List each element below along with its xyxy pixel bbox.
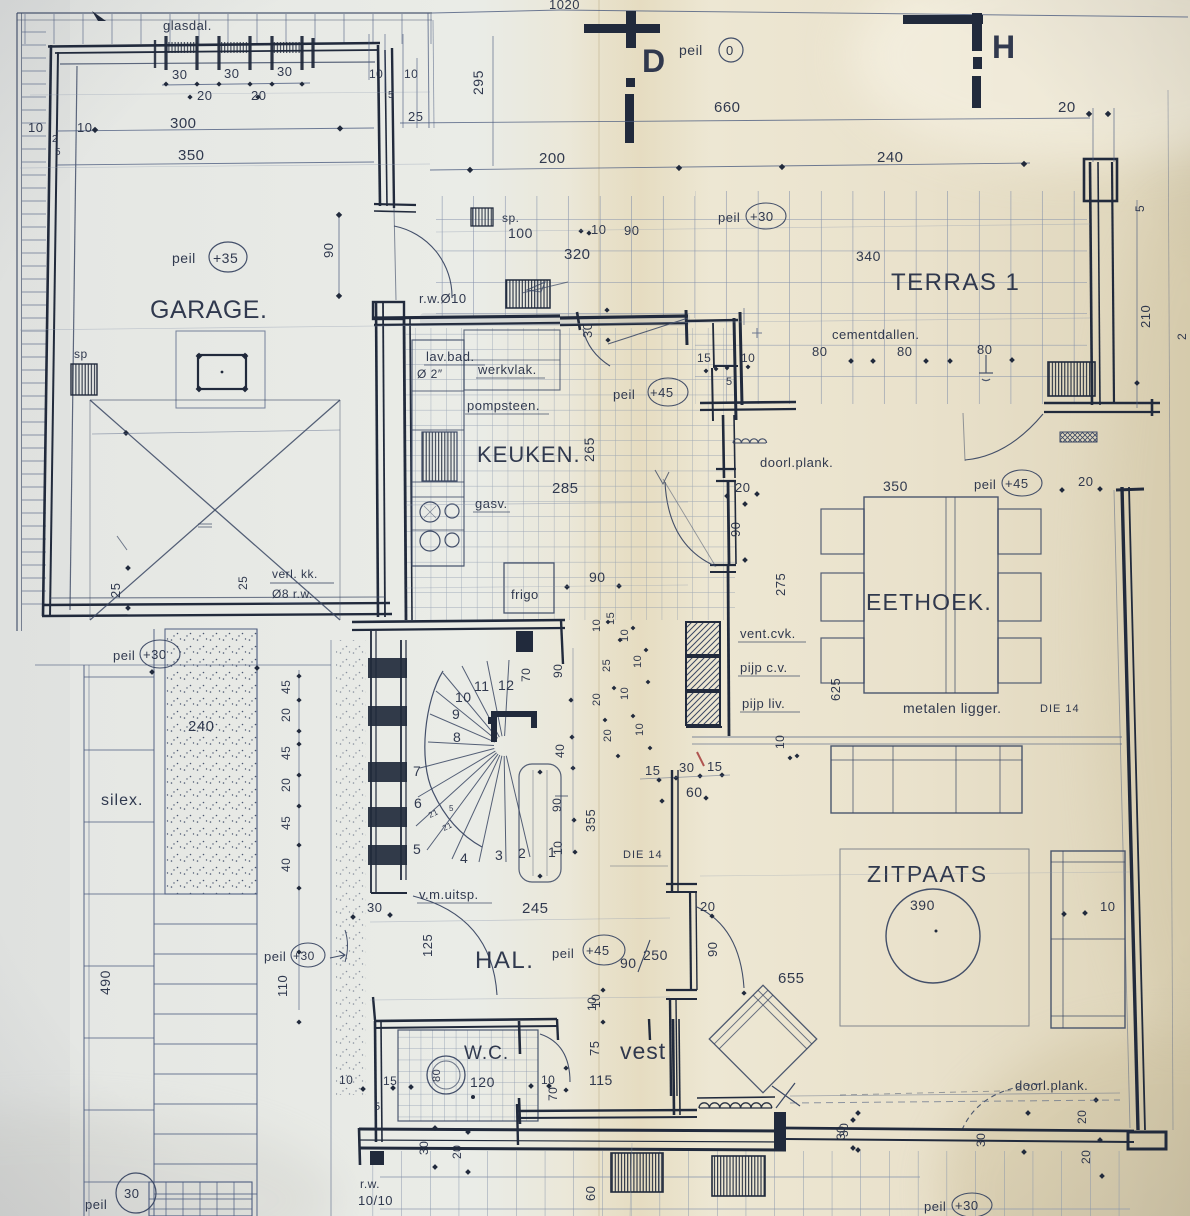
svg-text:4: 4 <box>460 850 468 866</box>
svg-text:peil: peil <box>679 42 703 58</box>
svg-text:peil: peil <box>552 946 574 961</box>
svg-text:25: 25 <box>408 109 423 124</box>
svg-text:10: 10 <box>404 67 418 81</box>
svg-text:80: 80 <box>897 344 912 359</box>
svg-text:10: 10 <box>339 1073 353 1087</box>
svg-text:245: 245 <box>522 900 549 917</box>
svg-text:320: 320 <box>564 246 591 263</box>
svg-text:355: 355 <box>583 809 598 832</box>
svg-text:12: 12 <box>498 677 515 693</box>
svg-text:2: 2 <box>52 134 58 145</box>
svg-text:20: 20 <box>1058 99 1076 116</box>
svg-text:70: 70 <box>546 1087 560 1101</box>
svg-text:20: 20 <box>1075 1110 1089 1124</box>
svg-text:6: 6 <box>414 795 422 811</box>
svg-text:350: 350 <box>883 478 908 494</box>
svg-text:490: 490 <box>97 970 113 995</box>
svg-text:265: 265 <box>581 437 597 462</box>
svg-text:pijp c.v.: pijp c.v. <box>740 660 788 675</box>
svg-text:10: 10 <box>455 689 472 705</box>
svg-text:vent.cvk.: vent.cvk. <box>740 626 796 641</box>
svg-text:+45: +45 <box>1005 476 1029 491</box>
svg-text:20: 20 <box>1079 1150 1093 1164</box>
svg-text:240: 240 <box>877 149 904 166</box>
svg-text:10: 10 <box>741 351 755 365</box>
svg-text:30: 30 <box>837 1123 851 1137</box>
svg-text:cementdallen.: cementdallen. <box>832 327 919 342</box>
svg-text:5: 5 <box>388 90 394 101</box>
svg-text:pijp liv.: pijp liv. <box>742 696 785 711</box>
svg-text:glasdal.: glasdal. <box>163 18 212 33</box>
svg-text:7: 7 <box>413 763 421 779</box>
svg-text:25: 25 <box>236 576 250 590</box>
svg-text:30: 30 <box>580 323 595 338</box>
svg-text:240: 240 <box>188 718 215 735</box>
svg-text:10: 10 <box>591 619 603 632</box>
svg-text:90: 90 <box>321 243 336 258</box>
svg-text:20: 20 <box>700 899 715 914</box>
svg-text:20: 20 <box>279 778 293 792</box>
svg-text:r.w.Ø10: r.w.Ø10 <box>419 291 467 306</box>
svg-text:5: 5 <box>726 376 733 388</box>
svg-text:80: 80 <box>977 342 992 357</box>
svg-text:10: 10 <box>591 222 606 237</box>
svg-text:v.m.uitsp.: v.m.uitsp. <box>419 887 479 902</box>
svg-text:40: 40 <box>279 858 293 872</box>
svg-text:20: 20 <box>279 708 293 722</box>
svg-text:30: 30 <box>367 900 382 915</box>
svg-text:W.C.: W.C. <box>464 1043 509 1064</box>
svg-text:werkvlak.: werkvlak. <box>477 362 537 377</box>
svg-text:340: 340 <box>856 248 881 264</box>
svg-text:TERRAS 1: TERRAS 1 <box>891 269 1020 296</box>
svg-text:2: 2 <box>1175 333 1189 340</box>
svg-text:90: 90 <box>620 955 637 971</box>
svg-text:1020: 1020 <box>549 0 580 12</box>
svg-text:gasv.: gasv. <box>475 496 508 511</box>
svg-text:10: 10 <box>551 841 565 855</box>
svg-text:90: 90 <box>705 942 720 957</box>
svg-text:5: 5 <box>55 147 61 158</box>
svg-text:295: 295 <box>470 70 486 95</box>
svg-text:15: 15 <box>697 351 711 365</box>
svg-text:8: 8 <box>453 729 461 745</box>
svg-text:300: 300 <box>170 115 197 132</box>
svg-text:45: 45 <box>279 746 293 760</box>
svg-text:45: 45 <box>279 680 293 694</box>
svg-text:+45: +45 <box>650 385 674 400</box>
svg-text:15: 15 <box>707 759 722 774</box>
svg-text:+30: +30 <box>955 1198 979 1213</box>
svg-text:0: 0 <box>726 43 734 58</box>
svg-text:10: 10 <box>1100 899 1115 914</box>
svg-text:frigo: frigo <box>511 587 539 602</box>
svg-text:sp.: sp. <box>502 211 520 225</box>
svg-text:90: 90 <box>624 223 639 238</box>
svg-text:+35: +35 <box>213 250 238 266</box>
svg-text:15: 15 <box>645 763 660 778</box>
svg-text:20: 20 <box>197 88 212 103</box>
svg-text:peil: peil <box>264 949 286 964</box>
svg-text:5: 5 <box>413 841 421 857</box>
svg-text:Ø8 r.w.: Ø8 r.w. <box>272 587 313 601</box>
svg-text:30: 30 <box>124 1186 139 1201</box>
svg-text:45: 45 <box>279 816 293 830</box>
svg-text:80: 80 <box>431 1069 443 1082</box>
svg-text:metalen ligger.: metalen ligger. <box>903 700 1002 716</box>
svg-text:vest: vest <box>620 1038 666 1064</box>
svg-text:r.w.: r.w. <box>360 1177 380 1191</box>
svg-text:660: 660 <box>714 99 741 116</box>
svg-text:210: 210 <box>1138 305 1153 328</box>
svg-text:KEUKEN.: KEUKEN. <box>477 442 581 467</box>
svg-text:5: 5 <box>1133 205 1147 212</box>
svg-text:390: 390 <box>910 897 935 913</box>
svg-text:10: 10 <box>632 655 644 668</box>
svg-text:lav.bad.: lav.bad. <box>426 349 475 364</box>
svg-text:10/10: 10/10 <box>358 1193 393 1208</box>
svg-text:90: 90 <box>589 569 606 585</box>
svg-text:10: 10 <box>619 687 631 700</box>
svg-text:H: H <box>992 29 1015 65</box>
svg-text:120: 120 <box>470 1074 495 1090</box>
svg-text:Ø 2″: Ø 2″ <box>417 367 443 381</box>
svg-text:25: 25 <box>108 583 123 598</box>
svg-text:15: 15 <box>383 1074 397 1088</box>
svg-text:5: 5 <box>449 804 454 813</box>
svg-text:20: 20 <box>735 480 750 495</box>
svg-text:80: 80 <box>812 344 827 359</box>
svg-text:655: 655 <box>778 970 805 987</box>
svg-text:90: 90 <box>551 664 565 678</box>
svg-text:90: 90 <box>550 798 564 812</box>
svg-text:30: 30 <box>974 1133 988 1147</box>
svg-text:10: 10 <box>773 735 787 749</box>
svg-text:doorl.plank.: doorl.plank. <box>760 455 833 470</box>
svg-text:10: 10 <box>585 997 599 1011</box>
svg-text:DIE 14: DIE 14 <box>623 849 663 861</box>
svg-text:20: 20 <box>450 1145 464 1159</box>
svg-text:20: 20 <box>591 693 603 706</box>
svg-text:silex.: silex. <box>101 792 143 809</box>
svg-text:peil: peil <box>613 387 635 402</box>
svg-text:peil: peil <box>718 210 740 225</box>
svg-text:125: 125 <box>420 934 435 957</box>
svg-text:10: 10 <box>77 120 92 135</box>
svg-text:30: 30 <box>224 66 239 81</box>
svg-text:75: 75 <box>587 1041 602 1056</box>
svg-text:9: 9 <box>452 706 460 722</box>
svg-text:EETHOEK.: EETHOEK. <box>866 589 992 615</box>
svg-text:70: 70 <box>519 668 533 682</box>
svg-text:20: 20 <box>1078 474 1093 489</box>
svg-text:30: 30 <box>172 67 187 82</box>
svg-text:60: 60 <box>583 1186 598 1201</box>
svg-text:115: 115 <box>589 1072 613 1088</box>
svg-text:275: 275 <box>773 573 788 596</box>
svg-text:350: 350 <box>178 147 205 164</box>
svg-text:+30: +30 <box>750 209 774 224</box>
svg-text:20: 20 <box>602 729 614 742</box>
svg-text:3: 3 <box>495 847 503 863</box>
svg-text:10: 10 <box>28 120 43 135</box>
svg-text:peil: peil <box>924 1199 946 1214</box>
svg-text:60: 60 <box>686 784 703 800</box>
svg-text:GARAGE.: GARAGE. <box>150 296 267 324</box>
svg-text:sp: sp <box>74 347 88 361</box>
svg-text:10: 10 <box>369 67 383 81</box>
svg-text:HAL.: HAL. <box>475 947 534 974</box>
svg-text:DIE 14: DIE 14 <box>1040 703 1080 715</box>
svg-text:10: 10 <box>634 723 646 736</box>
svg-text:30: 30 <box>277 64 292 79</box>
svg-text:100: 100 <box>508 225 533 241</box>
svg-text:peil: peil <box>113 648 135 663</box>
svg-text:peil: peil <box>85 1197 107 1212</box>
svg-text:625: 625 <box>828 678 843 701</box>
svg-text:peil: peil <box>974 477 996 492</box>
svg-text:D: D <box>642 43 665 79</box>
svg-text:11: 11 <box>474 678 490 694</box>
svg-text:verl. kk.: verl. kk. <box>272 567 318 581</box>
svg-text:40: 40 <box>553 744 567 758</box>
svg-text:peil: peil <box>172 250 196 266</box>
svg-text:pompsteen.: pompsteen. <box>467 398 540 413</box>
svg-text:110: 110 <box>275 975 290 997</box>
svg-text:+30: +30 <box>143 647 167 662</box>
svg-text:5: 5 <box>374 1101 381 1113</box>
svg-text:30: 30 <box>679 760 694 775</box>
svg-text:+30: +30 <box>293 949 315 963</box>
svg-text:200: 200 <box>539 150 566 167</box>
svg-text:25: 25 <box>601 659 613 672</box>
svg-text:+45: +45 <box>586 943 610 958</box>
svg-text:285: 285 <box>552 480 579 497</box>
